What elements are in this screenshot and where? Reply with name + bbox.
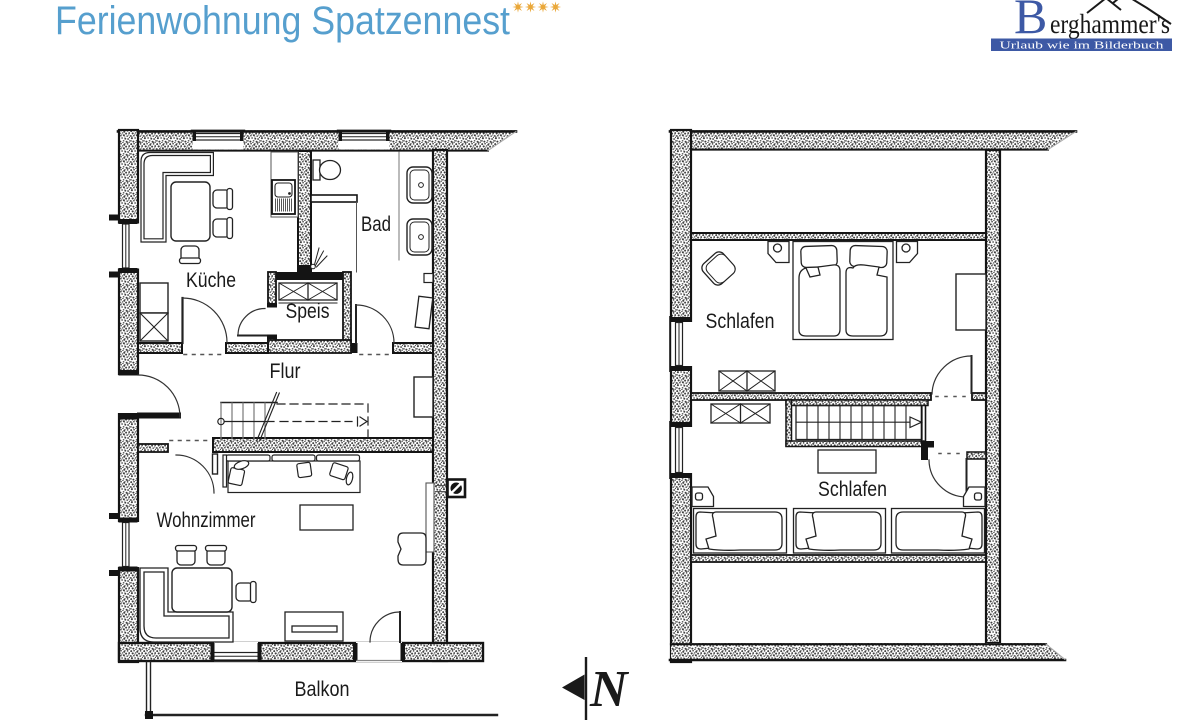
svg-text:Küche: Küche bbox=[186, 269, 236, 292]
svg-text:N: N bbox=[589, 661, 630, 718]
svg-text:B: B bbox=[1014, 0, 1047, 44]
svg-text:Speis: Speis bbox=[286, 300, 330, 323]
svg-text:Wohnzimmer: Wohnzimmer bbox=[157, 509, 256, 532]
svg-text:Schlafen: Schlafen bbox=[706, 310, 775, 333]
svg-text:Ferienwohnung Spatzennest: Ferienwohnung Spatzennest bbox=[55, 0, 510, 43]
svg-text:Urlaub wie im Bilderbuch: Urlaub wie im Bilderbuch bbox=[1000, 40, 1165, 51]
svg-text:Schlafen: Schlafen bbox=[818, 478, 887, 501]
svg-text:Bad: Bad bbox=[361, 213, 391, 236]
svg-text:Balkon: Balkon bbox=[295, 678, 350, 701]
svg-text:erghammer's: erghammer's bbox=[1050, 9, 1170, 39]
svg-text:Flur: Flur bbox=[270, 360, 301, 383]
